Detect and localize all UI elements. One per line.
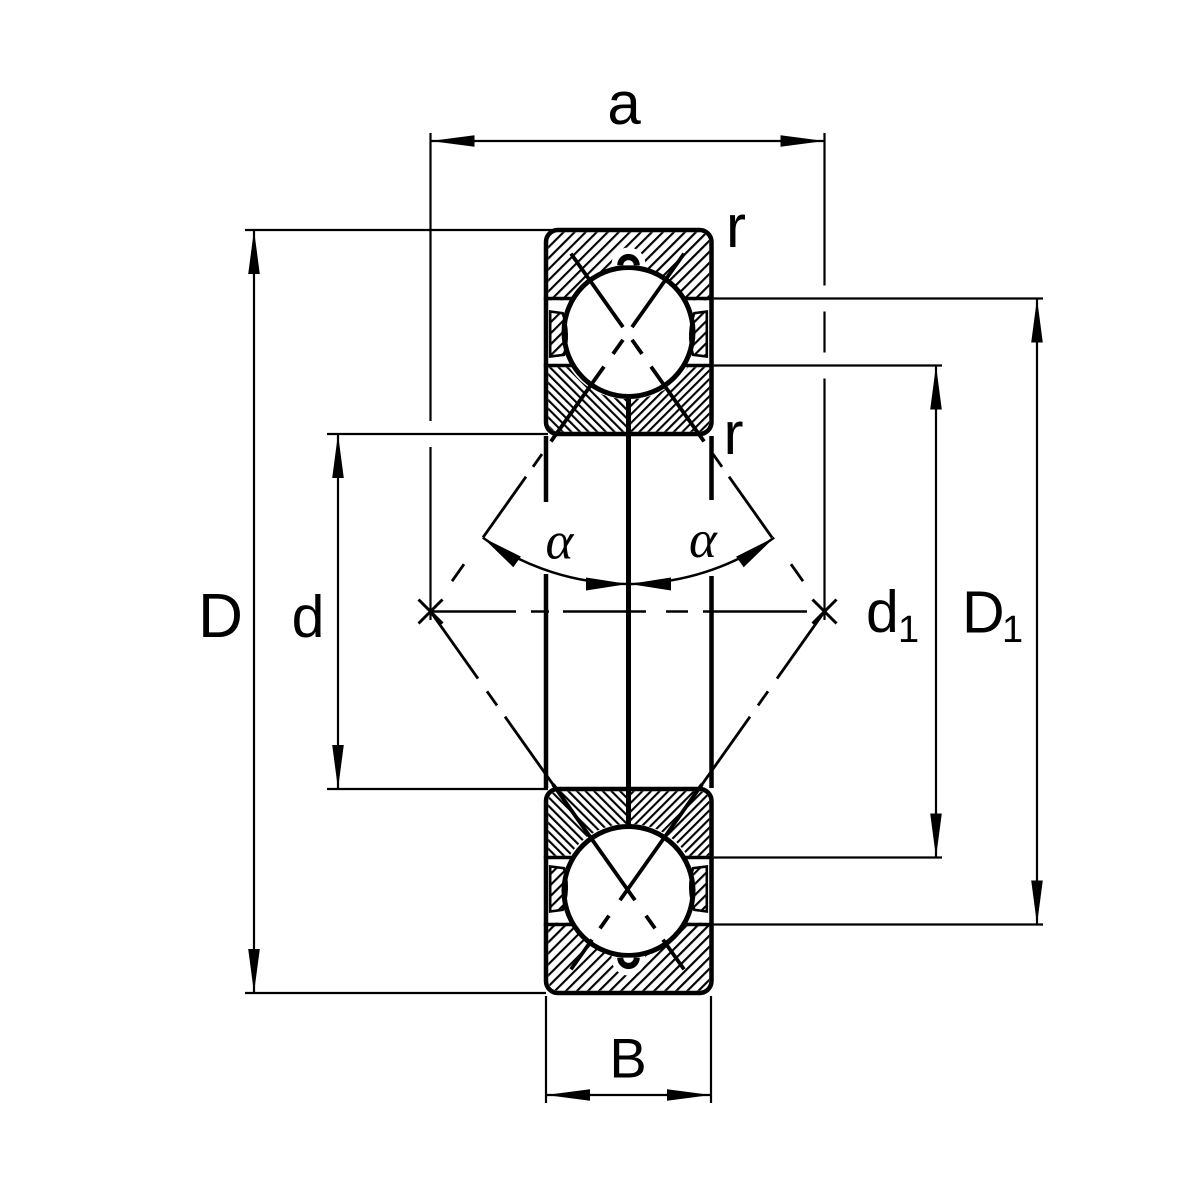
svg-text:B: B — [609, 1027, 646, 1090]
svg-text:r: r — [724, 400, 744, 467]
svg-text:d: d — [292, 584, 325, 650]
svg-text:α: α — [546, 513, 575, 571]
svg-text:D: D — [962, 580, 1005, 646]
svg-text:D: D — [198, 582, 243, 651]
svg-text:d: d — [866, 579, 899, 645]
svg-text:1: 1 — [1002, 609, 1023, 651]
svg-text:a: a — [607, 70, 641, 137]
svg-text:r: r — [726, 193, 746, 260]
svg-text:1: 1 — [898, 609, 919, 651]
svg-text:α: α — [689, 511, 718, 569]
